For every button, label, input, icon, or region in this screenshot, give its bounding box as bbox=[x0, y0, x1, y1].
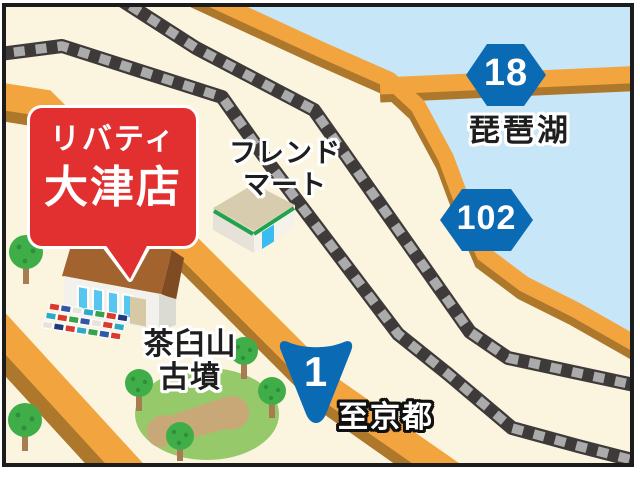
kofun-label-line2: 古墳 bbox=[138, 362, 242, 394]
route-badge-18-number: 18 bbox=[459, 54, 553, 94]
friend-mart-label-line1: フレンド bbox=[223, 139, 347, 167]
store-callout-line1: リバティ bbox=[36, 124, 190, 156]
kofun-label-line1: 茶臼山 bbox=[138, 329, 242, 361]
friend-mart-label-line2: マート bbox=[223, 171, 347, 199]
to-kyoto-label: 至京都 bbox=[330, 402, 442, 434]
store-callout-line2: 大津店 bbox=[36, 165, 190, 211]
map-frame: リバティ 大津店 フレンド マート 琵琶湖 茶臼山 古墳 至京都 18 102 … bbox=[2, 3, 634, 467]
store-area-map: { "callout": { "line1": "リバティ", "line2":… bbox=[0, 0, 640, 480]
lake-biwa-label: 琵琶湖 bbox=[438, 115, 602, 148]
route-badge-102-number: 102 bbox=[440, 201, 533, 237]
map-label-layer: リバティ 大津店 フレンド マート 琵琶湖 茶臼山 古墳 至京都 18 102 … bbox=[2, 3, 634, 467]
route-badge-1-number: 1 bbox=[289, 350, 343, 394]
